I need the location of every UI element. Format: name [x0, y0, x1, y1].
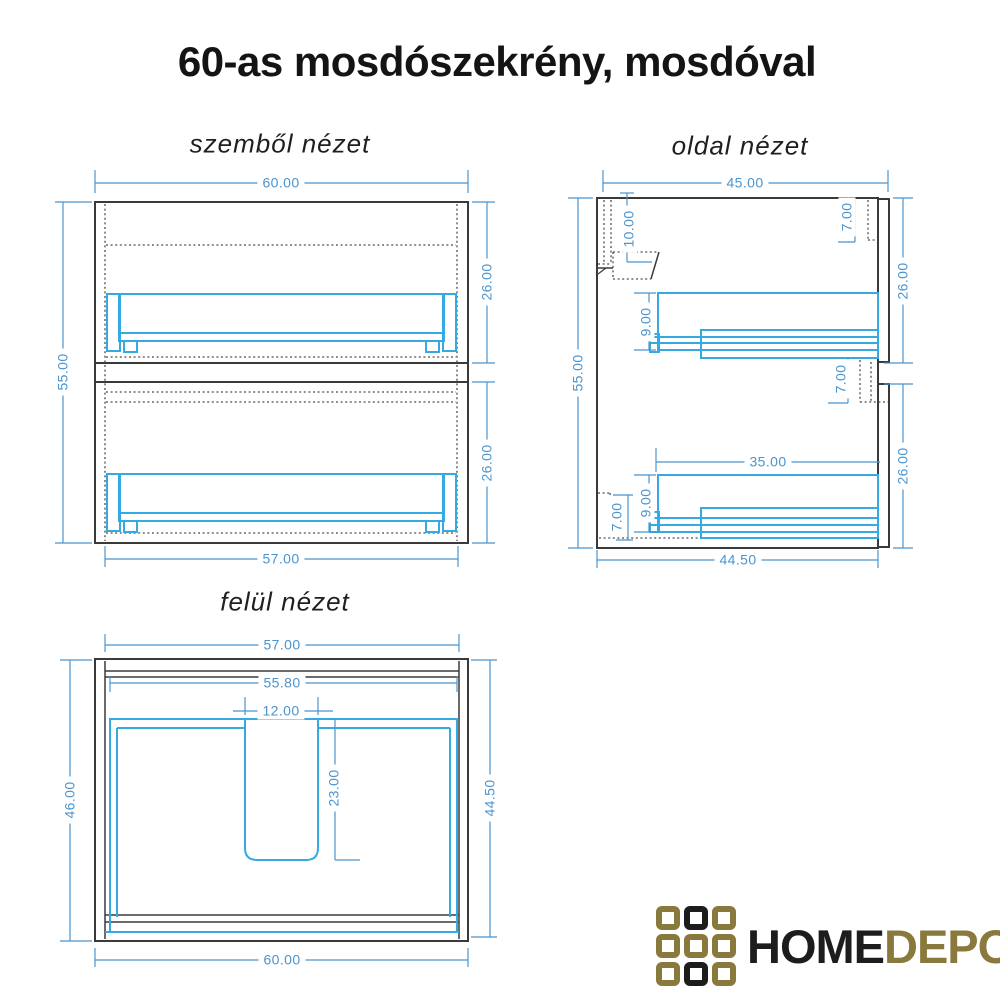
drawing-sheet: 60-as mosdószekrény, mosdóval szemből né… [0, 0, 1000, 1000]
logo-grid-cell [712, 934, 736, 958]
side-lower-front-panel [878, 384, 889, 547]
dim-side-upper-drawer-height: 9.00 [638, 303, 655, 342]
dim-side-depth-top: 45.00 [721, 175, 768, 192]
dim-side-upper-section: 26.00 [895, 257, 912, 304]
logo-grid-icon [656, 906, 736, 986]
logo-grid-cell [684, 934, 708, 958]
side-top-notch-hidden [868, 200, 878, 240]
dim-side-lower-section: 26.00 [895, 442, 912, 489]
front-view-label: szemből nézet [190, 129, 371, 160]
dim-side-drawer-depth: 35.00 [744, 454, 791, 471]
dim-front-height-left: 55.00 [55, 348, 72, 395]
dim-side-depth-bottom: 44.50 [714, 552, 761, 569]
logo-grid-cell [656, 934, 680, 958]
top-countertop-outline [95, 659, 468, 941]
dim-top-width-top: 57.00 [258, 637, 305, 654]
page-title: 60-as mosdószekrény, mosdóval [178, 38, 816, 86]
blueprint-linework [0, 0, 1000, 1000]
dim-side-lower-drawer-height: 9.00 [638, 484, 655, 523]
dim-front-lower-section: 26.00 [479, 439, 496, 486]
dim-top-depth-left: 46.00 [62, 776, 79, 823]
dim-front-width-top: 60.00 [257, 175, 304, 192]
dim-front-upper-section: 26.00 [479, 258, 496, 305]
dim-side-height-left: 55.00 [570, 349, 587, 396]
front-view [55, 170, 495, 567]
top-view-label: felül nézet [220, 587, 350, 618]
side-upper-front-panel [878, 199, 889, 362]
logo-grid-cell [656, 962, 680, 986]
sink-cutout [245, 719, 318, 860]
side-view-label: oldal nézet [672, 131, 809, 162]
logo-wordmark: HOMEDEPO [747, 919, 1000, 974]
logo-grid-cell [684, 962, 708, 986]
homedepo-logo: HOMEDEPO [656, 899, 1000, 993]
front-upper-drawer-box [107, 294, 456, 352]
dim-side-top-recess: 7.00 [839, 198, 856, 237]
dim-side-plinth: 7.00 [609, 498, 626, 537]
side-wall-rail-hidden [597, 200, 613, 274]
front-lower-drawer-box [107, 474, 456, 532]
front-cabinet-outline [95, 202, 468, 543]
dim-top-inner-width: 55.80 [258, 675, 305, 692]
side-mid-gap-hidden [860, 360, 888, 402]
dim-side-hanger-offset: 10.00 [621, 205, 638, 252]
logo-grid-cell [712, 962, 736, 986]
side-upper-drawer-slide [650, 293, 878, 358]
logo-grid-cell [712, 906, 736, 930]
logo-grid-cell [656, 906, 680, 930]
side-lower-drawer-slide [650, 475, 878, 538]
logo-text-home: HOME [747, 920, 884, 973]
logo-grid-cell [684, 906, 708, 930]
dim-top-depth-right: 44.50 [482, 774, 499, 821]
dim-side-mid-gap: 7.00 [833, 360, 850, 399]
top-drawer-outline [105, 719, 459, 932]
dim-top-width-bottom: 60.00 [258, 952, 305, 969]
dim-top-cutout-width: 12.00 [257, 703, 304, 720]
dim-front-width-bottom: 57.00 [257, 551, 304, 568]
dim-top-cutout-depth: 23.00 [326, 764, 343, 811]
logo-text-depo: DEPO [884, 920, 1000, 973]
side-hanger-bracket [613, 252, 659, 279]
